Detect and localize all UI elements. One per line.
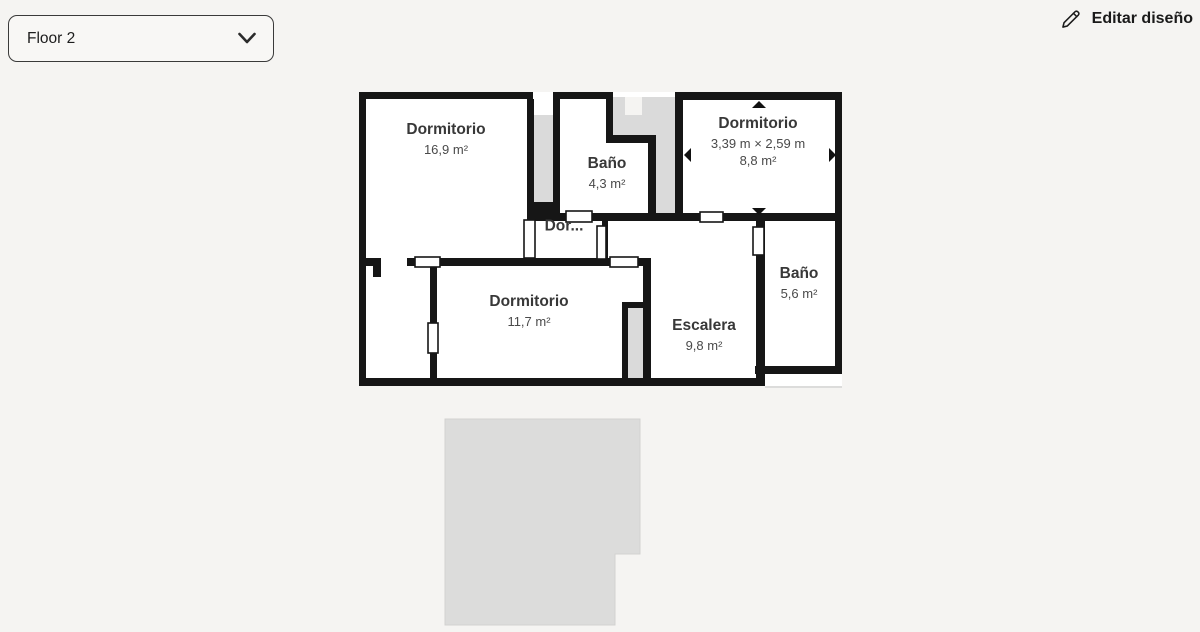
shaft-strip-left [534,115,553,202]
door-symbol[interactable] [415,257,440,267]
room-bano-2[interactable] [765,221,835,366]
wall [675,92,842,100]
room-dormitorio-2-selected[interactable] [683,100,835,213]
wall [835,92,842,374]
floor-selector-dropdown[interactable]: Floor 2 [8,15,274,62]
shaft-strip-right [656,97,675,213]
room-bano-1[interactable] [560,99,648,213]
wall [359,258,381,266]
floor-selector-value: Floor 2 [27,30,75,48]
wall [648,135,656,221]
room-dormitorio-small[interactable] [534,221,602,258]
wall [755,366,842,374]
wall [675,92,683,221]
edit-design-button[interactable]: Editar diseño [1058,4,1195,34]
lower-floor-outline [445,419,640,625]
floor-plan-editor: Dormitorio 16,9 m² Baño 4,3 m² Dormitori… [0,0,1200,632]
floor-plan-canvas [0,0,1200,632]
wall [359,92,533,99]
pencil-icon [1060,8,1082,30]
chevron-down-icon [237,32,257,45]
room-escalera[interactable] [608,221,756,378]
wall [553,92,613,99]
wall [359,92,366,386]
room-dormitorio-1[interactable] [366,99,527,258]
door-symbol[interactable] [700,212,723,222]
edit-design-label: Editar diseño [1092,10,1193,28]
wall [373,266,381,277]
door-symbol[interactable] [428,323,438,353]
wall [527,202,556,213]
wall [359,378,765,386]
